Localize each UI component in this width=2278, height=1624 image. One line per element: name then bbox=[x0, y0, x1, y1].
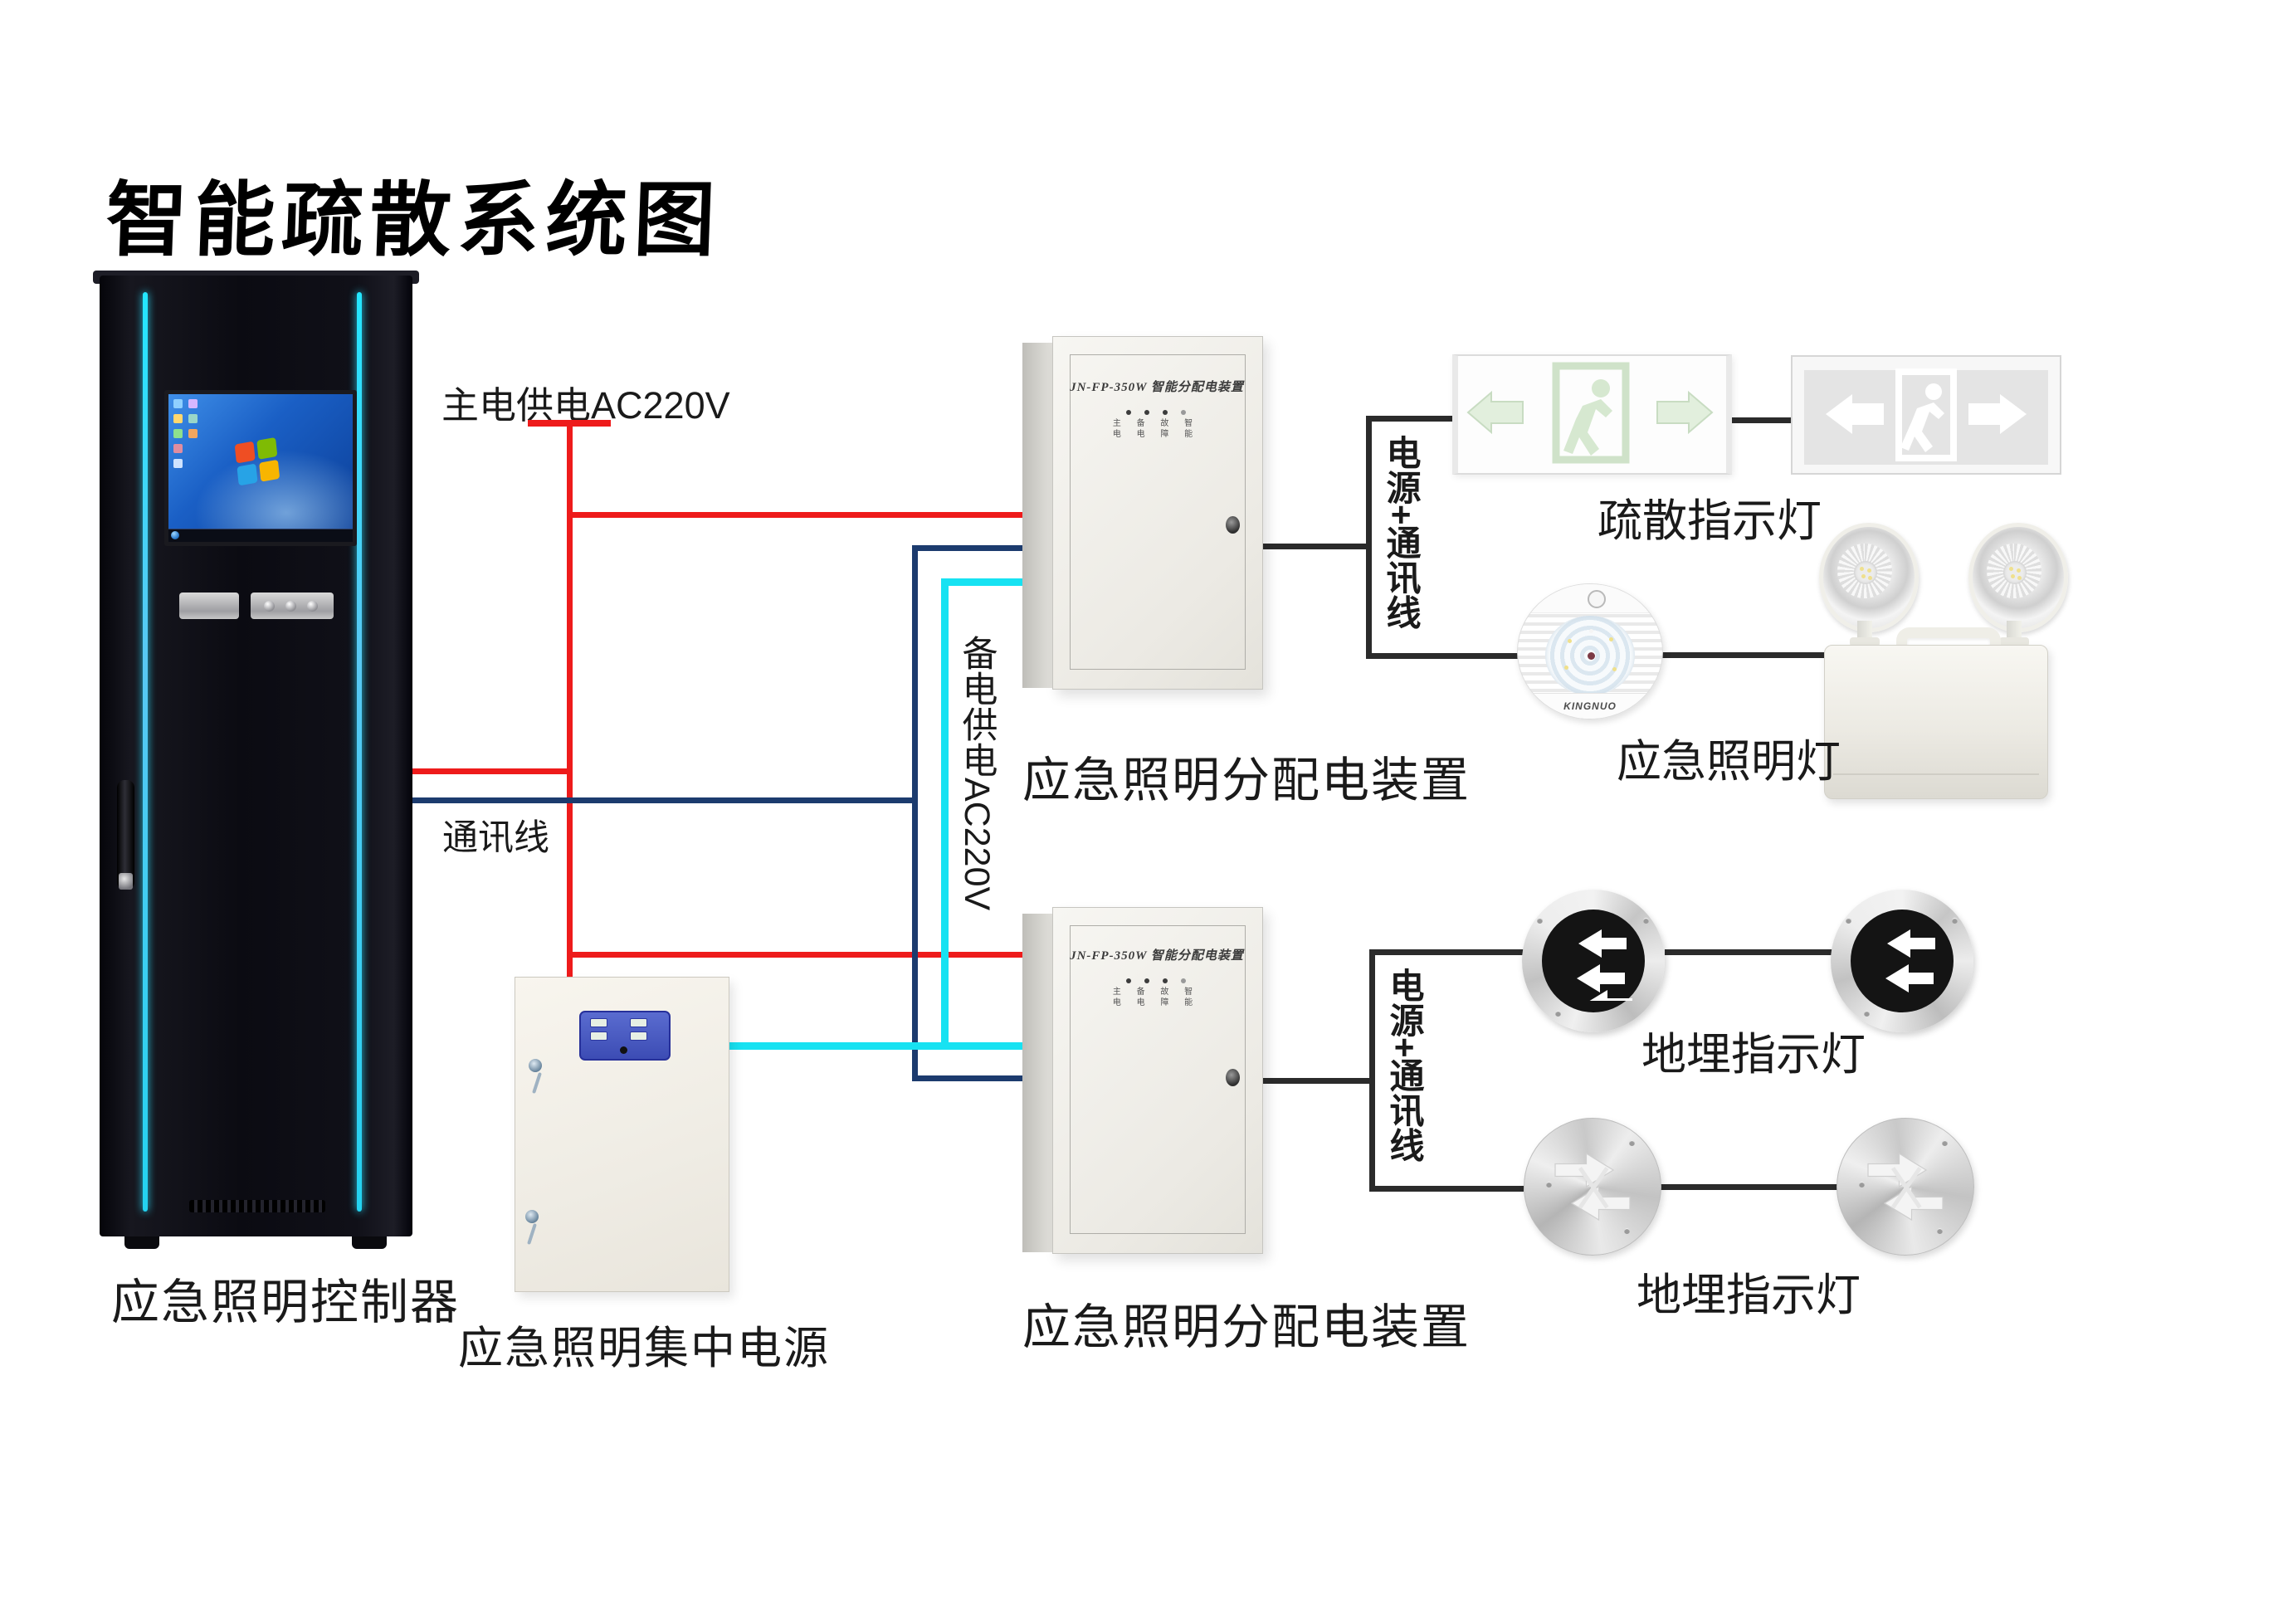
exit-sign-graphic bbox=[1458, 356, 1723, 470]
desktop-icon bbox=[188, 429, 198, 438]
ground-light-black-right bbox=[1831, 890, 1973, 1032]
evacuation-system-diagram: 智能疏散系统图 bbox=[0, 0, 2278, 1624]
ground-light-black-left bbox=[1522, 890, 1665, 1032]
twin-head-led bbox=[1860, 567, 1864, 571]
roundlight-to-twinlight-link bbox=[1660, 652, 1826, 658]
desktop-icon bbox=[173, 429, 183, 438]
psu-lock-top bbox=[529, 1059, 542, 1072]
bracket1-arm-top bbox=[1366, 416, 1454, 422]
cabinet-foot bbox=[124, 1236, 159, 1249]
cabinet-lock bbox=[119, 873, 133, 890]
round-light-center-led bbox=[1588, 652, 1595, 660]
ground-light-face bbox=[1851, 910, 1954, 1012]
cabinet-vents bbox=[189, 1200, 325, 1212]
cabinet-knob bbox=[307, 601, 318, 612]
box2-door-frame bbox=[1070, 925, 1246, 1234]
ground-light-face bbox=[1542, 910, 1645, 1012]
main-power-to-box2 bbox=[567, 952, 1022, 958]
main-power-to-box1 bbox=[567, 512, 1022, 518]
windows-logo-green bbox=[256, 437, 277, 460]
twin-body-seam bbox=[1833, 773, 2039, 775]
screw-icon bbox=[1624, 1228, 1630, 1234]
psu-knob bbox=[620, 1046, 627, 1054]
twin-light-body bbox=[1824, 645, 2048, 799]
running-man-icon bbox=[1563, 399, 1612, 456]
cabinet-foot bbox=[352, 1236, 387, 1249]
twin-head-lens bbox=[2003, 561, 2027, 584]
comm-line-label: 通讯线 bbox=[442, 809, 549, 861]
engraved-double-arrow-icon bbox=[1856, 1137, 1955, 1236]
backup-power-from-psu bbox=[728, 1042, 1022, 1050]
exit-sign-lit bbox=[1452, 354, 1732, 475]
desktop-icon bbox=[188, 414, 198, 423]
backup-power-label: 备电供电AC220V bbox=[951, 635, 1002, 900]
box2-to-bracket2-link bbox=[1259, 1078, 1373, 1084]
desktop-icon bbox=[173, 444, 183, 453]
desktop-icon bbox=[173, 399, 183, 408]
round-light-brand: KINGNUO bbox=[1518, 693, 1662, 719]
box2-indicator-text-1: 主 备 故 智 bbox=[1094, 987, 1218, 997]
twin-head-lens bbox=[1854, 561, 1877, 584]
backup-power-to-box1 bbox=[941, 578, 1022, 586]
screw-icon bbox=[1846, 918, 1851, 924]
exit-sign-graphic bbox=[1793, 357, 2056, 470]
windows-logo-blue bbox=[237, 464, 257, 486]
start-orb-icon bbox=[171, 531, 179, 539]
desktop-icon bbox=[188, 399, 198, 408]
twin-light-head-left bbox=[1819, 523, 1919, 632]
windows-logo-red bbox=[235, 441, 256, 464]
box2-indicator-leds bbox=[1094, 978, 1218, 983]
bracket2-label: 电源+通讯线 bbox=[1379, 968, 1430, 1187]
windows-logo-yellow bbox=[259, 460, 280, 482]
box1-to-bracket1-link bbox=[1259, 544, 1371, 549]
box1-lock bbox=[1226, 516, 1240, 534]
ground-light-row2-label: 地埋指示灯 bbox=[1637, 1258, 1861, 1324]
psu-display-window bbox=[631, 1032, 646, 1040]
exit-sign-unlit bbox=[1791, 355, 2061, 475]
box1-print-title: JN-FP-350W 智能分配电装置 bbox=[1052, 378, 1261, 395]
cabinet-knob bbox=[285, 601, 296, 612]
evac-sign-label: 疏散指示灯 bbox=[1598, 484, 1822, 549]
bracket2-spine bbox=[1369, 949, 1375, 1192]
box2-indicator-text-2: 电 电 障 能 bbox=[1094, 997, 1218, 1008]
taskbar bbox=[168, 529, 353, 542]
screw-icon bbox=[1555, 1011, 1561, 1017]
desktop-icon bbox=[173, 414, 183, 423]
groundlight2a-to-2b-link bbox=[1660, 1184, 1838, 1190]
double-arrow-icon bbox=[1862, 921, 1942, 1001]
screw-icon bbox=[1546, 1182, 1552, 1188]
ground-light-steel-right bbox=[1837, 1118, 1974, 1256]
box2-print-title: JN-FP-350W 智能分配电装置 bbox=[1052, 946, 1261, 963]
box1-door-frame bbox=[1070, 354, 1246, 670]
cabinet-led-strip-right bbox=[357, 292, 362, 1212]
double-arrow-icon bbox=[1554, 921, 1633, 1001]
psu-display-window bbox=[591, 1032, 607, 1040]
comm-bus-vertical bbox=[912, 545, 918, 1081]
box1-indicator-leds bbox=[1094, 410, 1218, 415]
twin-light-head-right bbox=[1968, 523, 2068, 632]
central-power-label: 应急照明集中电源 bbox=[458, 1311, 830, 1377]
bracket2-arm-bottom bbox=[1369, 1186, 1524, 1192]
ground-light-row1-label: 地埋指示灯 bbox=[1641, 1017, 1866, 1083]
box1-label: 应急照明分配电装置 bbox=[1022, 741, 1471, 811]
box1-indicator-text-2: 电 电 障 能 bbox=[1094, 429, 1218, 440]
comm-to-box1 bbox=[912, 545, 1022, 551]
bracket1-arm-bottom bbox=[1366, 653, 1522, 659]
screw-icon bbox=[1937, 1228, 1943, 1234]
box1-indicator-text-1: 主 备 故 智 bbox=[1094, 418, 1218, 429]
twin-head-led bbox=[2009, 567, 2013, 571]
box2-side-face bbox=[1022, 914, 1054, 1252]
page-title: 智能疏散系统图 bbox=[105, 154, 724, 272]
round-emergency-light: KINGNUO bbox=[1517, 583, 1663, 719]
box1-side-face bbox=[1022, 343, 1054, 688]
main-power-to-cabinet bbox=[412, 768, 573, 774]
running-man-icon bbox=[1900, 402, 1944, 452]
backup-power-vertical bbox=[941, 578, 949, 1050]
bracket1-spine bbox=[1366, 416, 1372, 659]
screw-icon bbox=[1629, 1140, 1635, 1146]
main-power-bus-vertical bbox=[567, 423, 573, 977]
screw-icon bbox=[1537, 918, 1543, 924]
cabinet-knob bbox=[264, 601, 275, 612]
emergency-light-label: 应急照明灯 bbox=[1617, 724, 1841, 790]
cabinet-button-panel-left bbox=[179, 593, 239, 619]
psu-lock-bottom bbox=[525, 1210, 539, 1223]
round-light-test-button bbox=[1588, 590, 1606, 608]
screw-icon bbox=[1643, 918, 1649, 924]
screw-icon bbox=[1859, 1182, 1865, 1188]
desktop-icon bbox=[173, 459, 183, 468]
engraved-double-arrow-icon bbox=[1543, 1137, 1642, 1236]
comm-from-cabinet bbox=[412, 797, 918, 803]
screw-icon bbox=[1952, 918, 1958, 924]
screw-icon bbox=[1864, 1011, 1870, 1017]
bracket1-label: 电源+通讯线 bbox=[1376, 435, 1427, 654]
groundlight1a-to-1b-link bbox=[1665, 949, 1832, 955]
screw-icon bbox=[1942, 1140, 1948, 1146]
box2-label: 应急照明分配电装置 bbox=[1022, 1288, 1471, 1358]
bracket2-arm-top bbox=[1369, 949, 1524, 955]
cabinet-led-strip-left bbox=[143, 292, 148, 1212]
comm-to-box2 bbox=[912, 1075, 1022, 1081]
windows-logo-icon bbox=[235, 437, 282, 488]
controller-label: 应急照明控制器 bbox=[111, 1263, 460, 1333]
cabinet-screen bbox=[164, 390, 357, 546]
ground-light-steel-left bbox=[1524, 1118, 1661, 1256]
psu-display-window bbox=[631, 1019, 646, 1027]
psu-display-window bbox=[591, 1019, 607, 1027]
box2-lock bbox=[1226, 1069, 1240, 1086]
